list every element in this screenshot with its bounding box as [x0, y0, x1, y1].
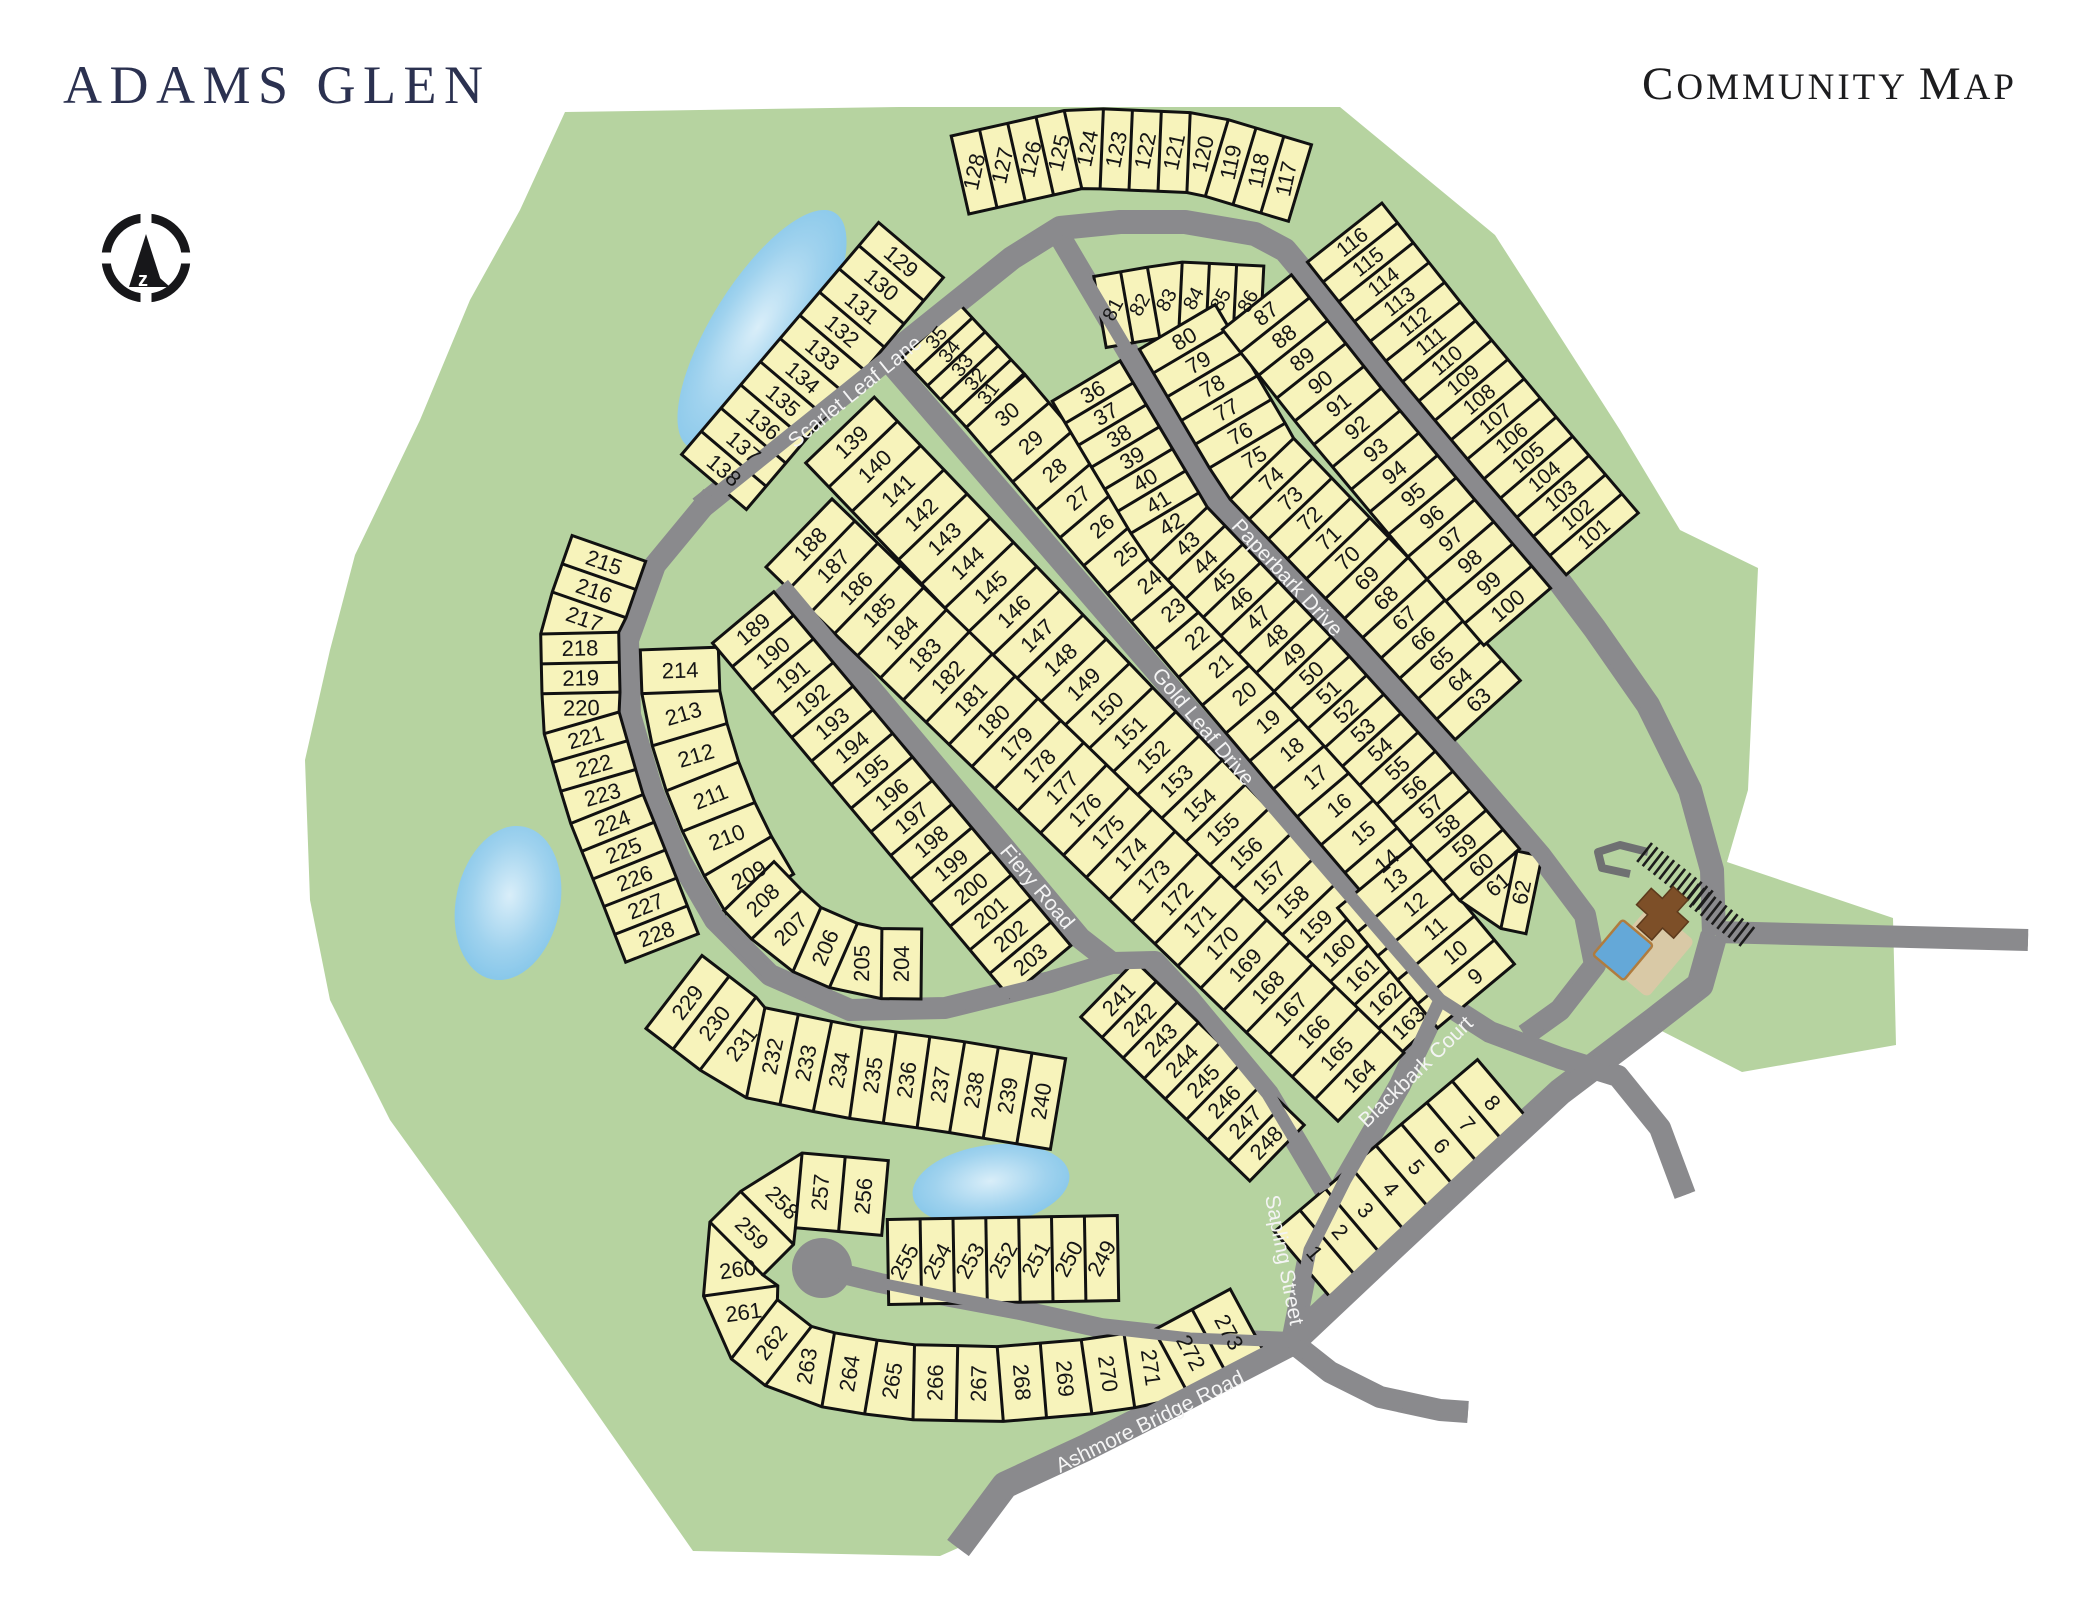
svg-text:261: 261 — [724, 1297, 764, 1327]
svg-text:218: 218 — [561, 635, 598, 661]
svg-text:256: 256 — [849, 1177, 877, 1216]
svg-text:268: 268 — [1008, 1363, 1036, 1402]
svg-text:236: 236 — [892, 1060, 922, 1100]
svg-text:260: 260 — [718, 1254, 758, 1284]
svg-text:267: 267 — [966, 1365, 992, 1402]
svg-text:220: 220 — [563, 695, 600, 721]
svg-text:ADAMS GLEN: ADAMS GLEN — [63, 55, 491, 115]
svg-text:269: 269 — [1051, 1359, 1079, 1398]
svg-text:z: z — [138, 269, 148, 291]
svg-text:205: 205 — [849, 945, 874, 982]
svg-text:271: 271 — [1136, 1348, 1166, 1388]
svg-text:204: 204 — [889, 945, 914, 982]
svg-text:235: 235 — [858, 1055, 888, 1095]
svg-text:266: 266 — [922, 1364, 948, 1401]
svg-text:214: 214 — [661, 657, 699, 683]
svg-text:237: 237 — [925, 1065, 955, 1105]
svg-text:270: 270 — [1093, 1354, 1123, 1394]
svg-text:219: 219 — [562, 665, 599, 691]
svg-text:62: 62 — [1507, 878, 1536, 907]
svg-text:257: 257 — [806, 1173, 834, 1212]
